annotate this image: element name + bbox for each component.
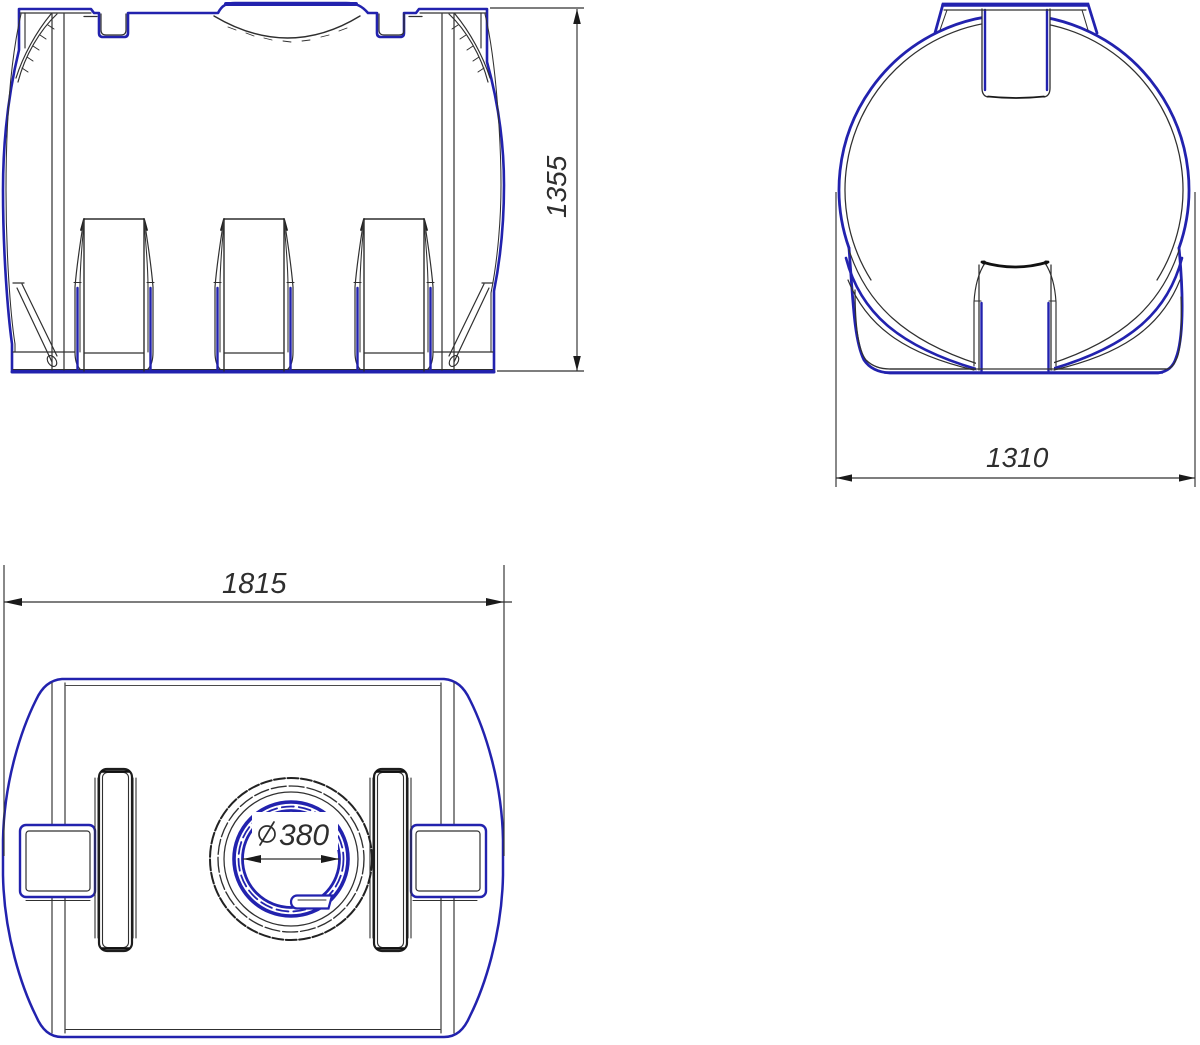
svg-text:380: 380 xyxy=(279,819,329,852)
svg-text:1355: 1355 xyxy=(541,155,572,218)
svg-text:1815: 1815 xyxy=(222,568,287,600)
svg-text:1310: 1310 xyxy=(986,442,1049,473)
